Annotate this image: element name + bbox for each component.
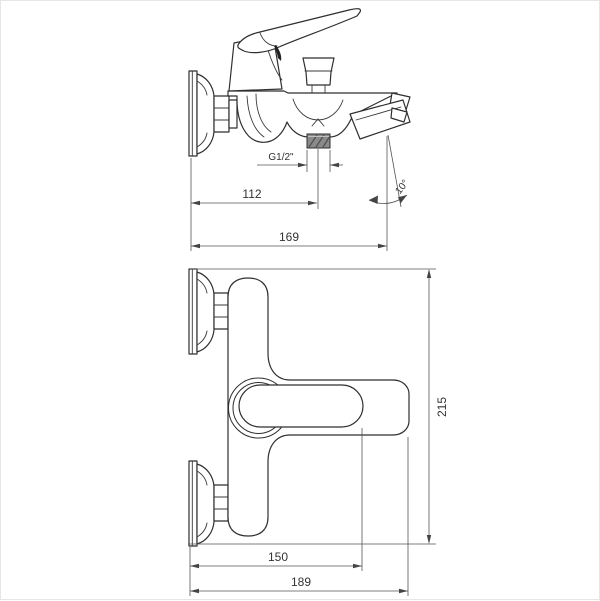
dim-label-215: 215 [435,397,449,417]
thread-outlet [307,134,330,148]
mixer-handle [229,9,360,91]
wall-flange [197,74,214,154]
faucet-body-front [228,278,409,536]
wall-plate [189,71,197,156]
dim-label-112: 112 [242,187,261,201]
dim-label-150: 150 [268,550,288,564]
wall-plate-top [189,269,228,354]
dim-label-189: 189 [291,575,311,589]
technical-drawing-canvas: G1/2" 112 169 10° [1,1,600,601]
technical-drawing-page: G1/2" 112 169 10° [0,0,600,600]
dim-label-thread: G1/2" [268,152,294,163]
hex-nut [214,96,237,132]
wall-plate-bottom [189,461,228,546]
front-view: 215 150 189 [188,269,449,596]
side-view: G1/2" 112 169 10° [189,9,411,251]
diverter-knob [303,58,334,93]
dim-thread: G1/2" [257,150,343,172]
dim-label-169: 169 [279,230,299,244]
dim-spout-angle: 10° [369,135,411,207]
handle-lever-front [239,385,363,427]
